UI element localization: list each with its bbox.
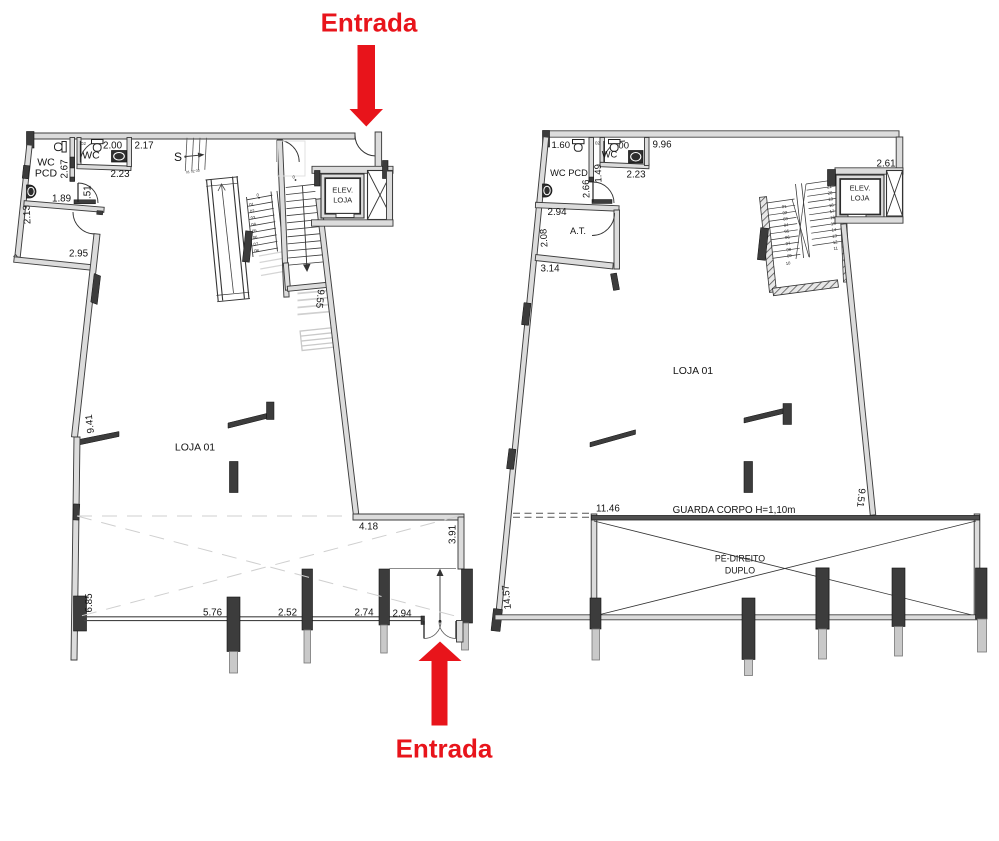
svg-text:2.08: 2.08 bbox=[538, 228, 550, 247]
svg-text:LOJA: LOJA bbox=[851, 194, 871, 203]
svg-text:2.61: 2.61 bbox=[877, 159, 896, 170]
svg-text:6.85: 6.85 bbox=[84, 593, 95, 613]
svg-text:3.14: 3.14 bbox=[541, 264, 561, 275]
svg-text:PÉ-DIREITO: PÉ-DIREITO bbox=[715, 554, 765, 564]
svg-text:1.60: 1.60 bbox=[552, 140, 571, 151]
svg-text:WC: WC bbox=[602, 150, 618, 160]
svg-text:2.95: 2.95 bbox=[69, 249, 89, 260]
svg-text:PCD: PCD bbox=[35, 168, 58, 180]
svg-text:1.49: 1.49 bbox=[593, 164, 605, 183]
svg-text:02: 02 bbox=[81, 141, 87, 146]
svg-text:9.96: 9.96 bbox=[653, 140, 673, 151]
svg-text:2.52: 2.52 bbox=[278, 608, 297, 619]
svg-text:2.00: 2.00 bbox=[103, 141, 123, 152]
svg-text:WC: WC bbox=[82, 150, 100, 162]
svg-text:9.55: 9.55 bbox=[313, 289, 326, 310]
svg-text:5.76: 5.76 bbox=[203, 608, 223, 619]
svg-text:S: S bbox=[174, 150, 182, 164]
svg-text:WC PCD: WC PCD bbox=[550, 168, 588, 178]
svg-text:9.51: 9.51 bbox=[854, 488, 867, 508]
svg-text:GUARDA CORPO H=1,10m: GUARDA CORPO H=1,10m bbox=[673, 505, 796, 516]
svg-text:2.17: 2.17 bbox=[135, 141, 154, 152]
svg-text:3.91: 3.91 bbox=[448, 525, 459, 544]
svg-text:9.41: 9.41 bbox=[84, 414, 97, 434]
svg-text:02: 02 bbox=[595, 141, 601, 146]
svg-text:2.13: 2.13 bbox=[21, 204, 33, 224]
svg-text:Entrada: Entrada bbox=[321, 8, 418, 38]
svg-text:2.66: 2.66 bbox=[581, 179, 593, 198]
svg-text:2.94: 2.94 bbox=[393, 609, 413, 620]
svg-text:Entrada: Entrada bbox=[396, 734, 493, 764]
svg-text:2.94: 2.94 bbox=[548, 207, 568, 218]
svg-text:ELEV.: ELEV. bbox=[850, 184, 871, 193]
svg-text:2.23: 2.23 bbox=[627, 170, 647, 181]
svg-text:LOJA 01: LOJA 01 bbox=[673, 365, 713, 377]
svg-text:1.89: 1.89 bbox=[52, 194, 71, 205]
svg-text:4.18: 4.18 bbox=[359, 522, 379, 533]
svg-text:LOJA 01: LOJA 01 bbox=[175, 442, 215, 454]
svg-text:ELEV.: ELEV. bbox=[332, 186, 353, 195]
svg-text:LOJA: LOJA bbox=[333, 196, 353, 205]
svg-text:11.46: 11.46 bbox=[596, 504, 620, 515]
svg-text:DUPLO: DUPLO bbox=[725, 566, 755, 576]
svg-text:2.74: 2.74 bbox=[355, 608, 375, 619]
svg-text:2.23: 2.23 bbox=[111, 169, 131, 180]
svg-text:.51: .51 bbox=[83, 185, 94, 199]
svg-text:2.67: 2.67 bbox=[59, 159, 70, 178]
svg-text:A.T.: A.T. bbox=[570, 226, 586, 236]
